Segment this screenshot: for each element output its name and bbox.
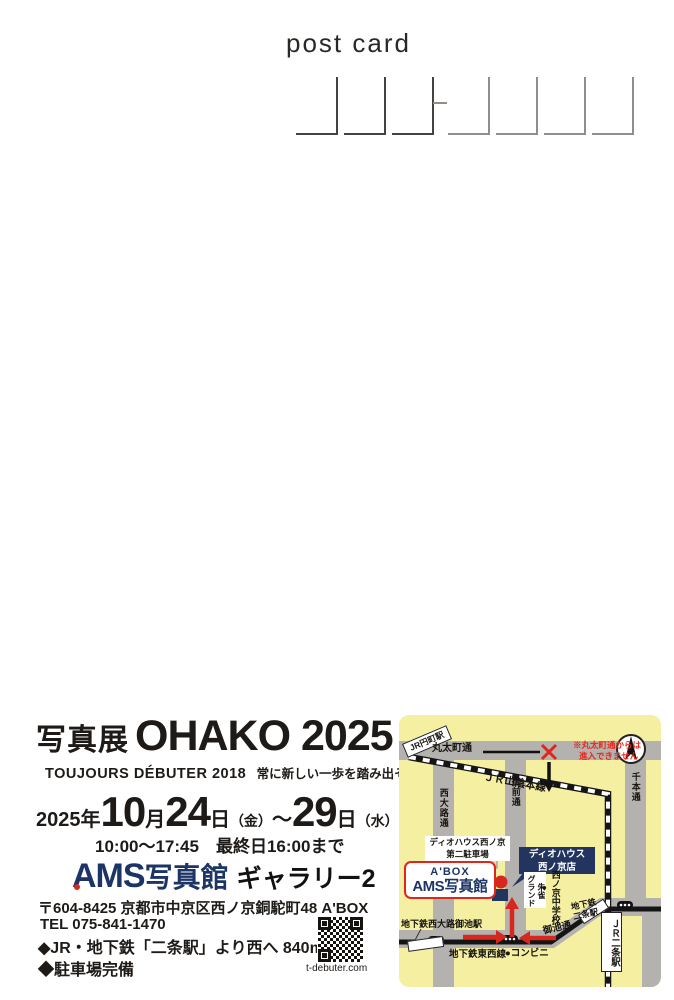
- exhibition-dates: 2025年 10 月 24 日 （金） 〜 29 日 （水）: [36, 788, 399, 836]
- venue-parking: ◆駐車場完備: [38, 956, 134, 980]
- qr-finder-icon: [318, 917, 331, 930]
- venue-address: 〒604-8425 京都市中京区西ノ京銅駝町48 A'BOX: [38, 897, 368, 918]
- qr-caption: t-debuter.com: [306, 963, 367, 974]
- dio-store-line1: ディオハウス: [519, 848, 595, 861]
- postal-cell: [496, 77, 538, 135]
- postal-cell: [296, 77, 338, 135]
- postal-cell: [344, 77, 386, 135]
- date-day-start: 24: [165, 788, 210, 836]
- subtitle-en: TOUJOURS DÉBUTER 2018: [45, 766, 246, 782]
- access-map: JR円町駅 ＪＲ二条駅 丸太町通 ※丸太町通からは 進入できません ＪＲ山陰本線…: [399, 715, 661, 987]
- venue-logo-suffix: 写真館: [145, 856, 229, 896]
- station-jr-nijo: ＪＲ二条駅: [601, 912, 622, 972]
- warning-line2: 進入できません: [573, 751, 641, 762]
- venue-gallery: ギャラリー2: [237, 859, 376, 895]
- dio-parking-line1: ディオハウス西ノ京: [425, 836, 510, 848]
- venue-logo-ams: AMS: [72, 857, 145, 896]
- warning-line1: ※丸太町通からは: [573, 740, 641, 751]
- conbini-label: ●コンビニ: [505, 948, 549, 959]
- ams-logo-red-dot: [74, 884, 80, 890]
- postal-cell: [392, 77, 434, 135]
- no-entry-warning: ※丸太町通からは 進入できません: [573, 740, 641, 762]
- date-day-label: 日: [210, 803, 230, 832]
- ams-map-card: A'BOX AMS写真館: [404, 861, 496, 899]
- date-dow-end: （水）: [357, 811, 399, 831]
- post-card-label: post card: [286, 28, 411, 59]
- dio-parking-card: ディオハウス西ノ京 第二駐車場: [425, 836, 510, 861]
- dio-parking-line2: 第二駐車場: [425, 848, 510, 860]
- postal-cell: [592, 77, 634, 135]
- road-senbon-label: 千本通: [630, 772, 641, 802]
- line-tozai-label: 地下鉄東西線: [449, 949, 506, 960]
- title-main: OHAKO 2025: [135, 712, 393, 761]
- road-marutamachi-label: 丸太町通: [432, 743, 472, 755]
- date-range-tilde: 〜: [272, 803, 292, 832]
- postal-hyphen: [433, 102, 447, 104]
- suzaku-line2: グランド: [526, 874, 536, 908]
- postal-cell: [544, 77, 586, 135]
- ams-card-name: AMS写真館: [406, 879, 494, 895]
- qr-code: [318, 917, 363, 962]
- postal-cell: [448, 77, 490, 135]
- exhibition-hours: 10:00〜17:45 最終日16:00まで: [95, 832, 344, 857]
- subtitle-ja: 常に新しい一歩を踏み出そう: [257, 767, 420, 781]
- road-onmae-label: 御前通: [510, 777, 521, 807]
- date-month: 10: [101, 788, 146, 836]
- venue-tel: TEL 075-841-1470: [40, 916, 166, 933]
- date-day-label2: 日: [337, 803, 357, 832]
- exhibition-title: 写真展 OHAKO 2025: [36, 712, 393, 761]
- postcard: post card 写真展 OHAKO 2025 TOUJOURS DÉBUTE…: [0, 0, 674, 1000]
- station-nishioji-oike-label: 地下鉄西大路御池駅: [401, 919, 482, 930]
- title-prefix: 写真展: [36, 715, 129, 759]
- date-dow-start: （金）: [230, 811, 272, 831]
- date-month-label: 月: [145, 803, 165, 832]
- date-year: 2025年: [36, 803, 101, 832]
- postal-code-boxes: [296, 77, 626, 135]
- qr-finder-icon: [350, 917, 363, 930]
- school-dot: ●: [542, 883, 547, 893]
- date-day-end: 29: [292, 788, 337, 836]
- exhibition-subtitle: TOUJOURS DÉBUTER 2018 常に新しい一歩を踏み出そう: [45, 763, 419, 783]
- qr-finder-icon: [318, 949, 331, 962]
- road-nishioji-label: 西大路通: [438, 788, 449, 828]
- venue-name: AMS 写真館 ギャラリー2: [72, 856, 375, 896]
- venue-access: ◆JR・地下鉄「二条駅」より西へ 840m: [38, 934, 324, 958]
- school-label: 西ノ京中学校: [550, 870, 561, 924]
